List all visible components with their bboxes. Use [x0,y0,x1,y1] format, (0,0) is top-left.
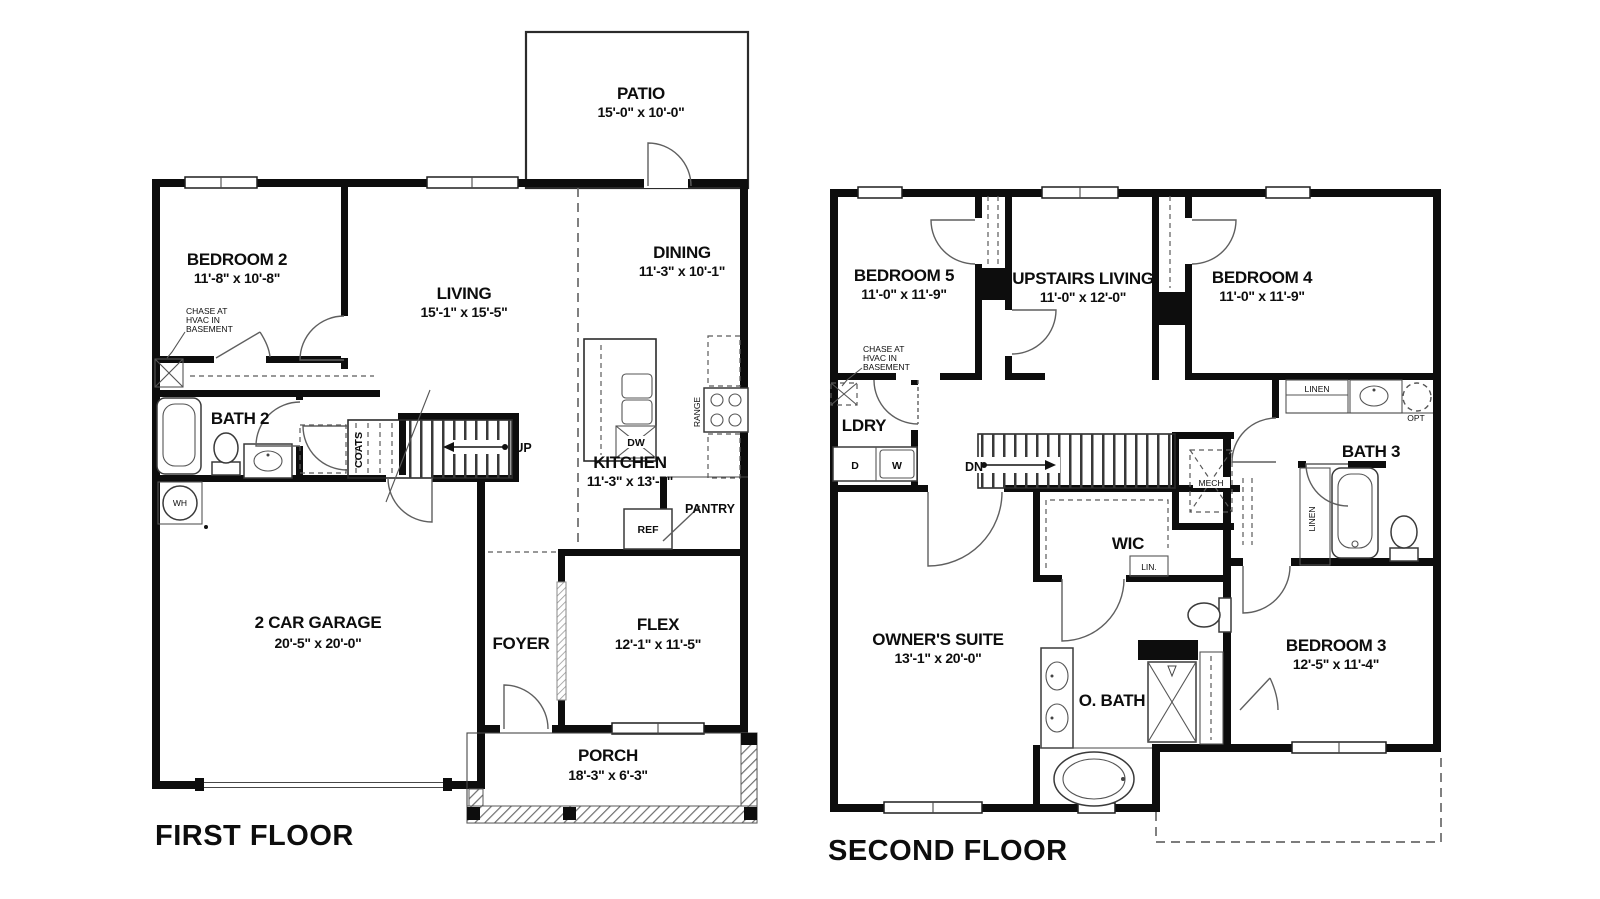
sink-basin-icon [622,374,652,398]
room-label-porch: PORCH [578,746,638,765]
linen-shelf-label: LIN. [1141,562,1157,572]
first-floor-title: FIRST FLOOR [155,820,354,852]
svg-text:OPT: OPT [1407,413,1424,423]
room-label-patio: PATIO [617,84,665,103]
room-label-pantry: PANTRY [685,502,736,516]
second-floor-plan: CHASE AT HVAC IN BASEMENT D W DN [828,187,1441,867]
room-dims-bedroom4: 11'-0" x 11'-9" [1219,288,1305,304]
dn-label: DN [965,460,983,474]
kitchen-fixtures: DW RANGE REF [584,336,748,549]
linen-closet: LINEN [1286,380,1348,413]
room-dims-bedroom2: 11'-8" x 10'-8" [194,270,280,286]
staircase-up: UP COATS [348,390,532,502]
laundry-fixtures: D W [833,447,917,481]
room-label-upstairs-living: UPSTAIRS LIVING [1012,269,1154,288]
bathtub-icon [1332,468,1378,558]
double-vanity-icon [1041,648,1073,748]
room-dims-owners-suite: 13'-1" x 20'-0" [894,650,981,666]
svg-text:LINEN: LINEN [1307,506,1317,531]
svg-text:WH: WH [173,498,187,508]
room-label-bedroom2: BEDROOM 2 [187,250,287,269]
room-label-bath3: BATH 3 [1342,442,1400,461]
room-dims-flex: 12'-1" x 11'-5" [615,636,701,652]
room-label-owners-suite: OWNER'S SUITE [872,630,1003,649]
room-dims-living: 15'-1" x 15'-5" [420,304,507,320]
toilet-icon [1188,598,1231,632]
mech-closet: MECH [1190,450,1232,512]
linen-closet-side: LINEN [1300,468,1330,565]
toilet-icon [212,433,240,475]
sink-icon [244,444,292,478]
toilet-icon [1390,516,1418,561]
staircase-down: DN [948,434,1175,488]
svg-text:BASEMENT: BASEMENT [863,362,910,372]
svg-text:REF: REF [638,524,660,536]
bathtub-icon [1040,748,1152,806]
bathtub-icon [157,398,201,474]
dryer-icon: D [851,460,859,472]
sink-icon [1350,380,1402,413]
wic-closet: LIN. [1046,500,1168,576]
room-label-dining: DINING [653,243,711,262]
room-label-bath2: BATH 2 [211,409,269,428]
sink-basin-icon [622,400,652,424]
washer-icon: W [892,460,902,472]
range-label: RANGE [692,397,702,428]
floor-plan-drawing: CHASE AT HVAC IN BASEMENT WH [0,0,1600,899]
cased-opening [557,582,566,700]
roof-outline [1156,752,1441,842]
room-dims-bedroom5: 11'-0" x 11'-9" [861,286,947,302]
room-label-bedroom5: BEDROOM 5 [854,266,954,285]
room-dims-kitchen: 11'-3" x 13'-7" [587,473,673,489]
chase-note-second: CHASE AT HVAC IN BASEMENT [863,344,910,372]
first-floor-dashed-lines [190,188,578,552]
optional-sink-icon: OPT [1403,383,1431,423]
room-dims-patio: 15'-0" x 10'-0" [597,104,684,120]
svg-text:BASEMENT: BASEMENT [186,324,233,334]
room-label-wic: WIC [1112,534,1144,553]
range-icon [704,388,748,432]
room-label-flex: FLEX [637,615,680,634]
room-label-living: LIVING [437,284,492,303]
room-dims-porch: 18'-3" x 6'-3" [568,767,648,783]
room-dims-upstairs-living: 11'-0" x 12'-0" [1040,289,1126,305]
room-dims-bedroom3: 12'-5" x 11'-4" [1293,656,1379,672]
coats-label: COATS [353,432,365,468]
first-floor-plan: CHASE AT HVAC IN BASEMENT WH [152,32,757,852]
room-dims-garage: 20'-5" x 20'-0" [274,635,361,651]
room-dims-dining: 11'-3" x 10'-1" [639,263,725,279]
bath3-fixtures: LINEN OPT LINEN [1286,380,1433,565]
room-label-garage: 2 CAR GARAGE [255,613,382,632]
room-label-bedroom4: BEDROOM 4 [1212,268,1313,287]
svg-text:DW: DW [627,437,645,449]
refrigerator-icon: REF [624,509,672,549]
water-heater-icon: WH [158,482,208,529]
mech-label: MECH [1198,478,1223,488]
floor-plan-page: CHASE AT HVAC IN BASEMENT WH [0,0,1600,899]
shower-icon [1148,662,1196,742]
room-label-obath: O. BATH [1079,691,1146,710]
room-label-ldry: LDRY [842,416,887,435]
room-label-kitchen: KITCHEN [593,453,666,472]
second-floor-title: SECOND FLOOR [828,835,1068,867]
room-label-bedroom3: BEDROOM 3 [1286,636,1386,655]
svg-text:LINEN: LINEN [1304,384,1329,394]
up-label: UP [514,441,531,455]
room-label-foyer: FOYER [492,634,549,653]
chase-note-first: CHASE AT HVAC IN BASEMENT [186,306,233,334]
